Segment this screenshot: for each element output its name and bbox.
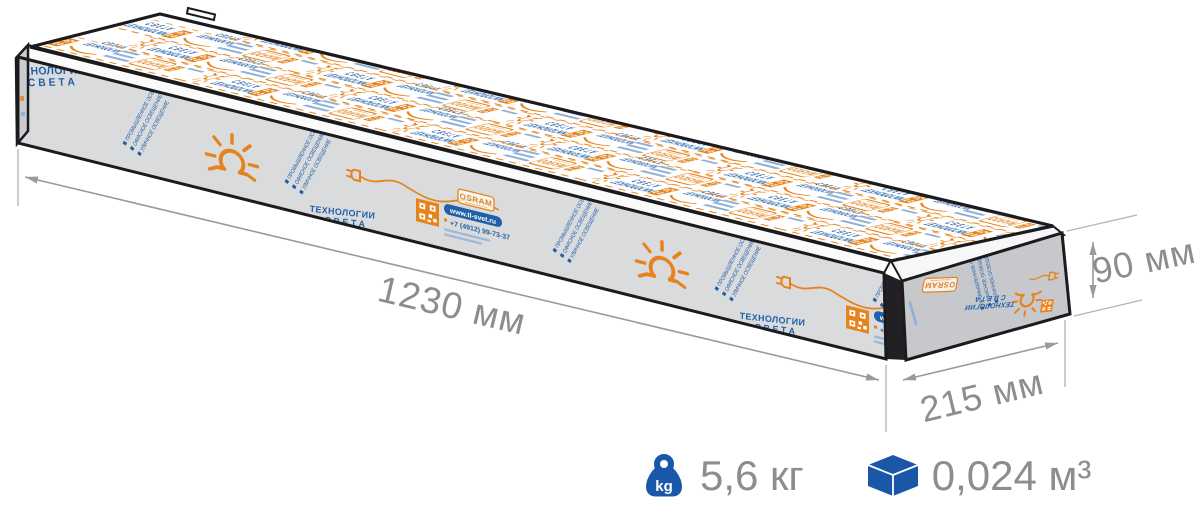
- product-dimensions-diagram: ТЕХНОЛОГИИ СВЕТА OSRAM ПРОМЫШЛЕННОЕ ОСВЕ…: [0, 0, 1200, 513]
- ext-line-height-top: [1067, 215, 1137, 231]
- volume-stat: 0,024 м³: [866, 452, 1092, 500]
- ext-line-height-bottom: [1074, 300, 1142, 316]
- dimension-height-label: 90 мм: [1089, 230, 1200, 292]
- dimension-length-label: 1230 мм: [374, 268, 530, 343]
- left-end-print-mark: [20, 96, 24, 101]
- kg-badge: kg: [655, 478, 673, 495]
- cube-icon: [866, 453, 920, 499]
- package-stats-row: kg 5,6 кг 0,024 м³: [640, 452, 1091, 500]
- weight-value: 5,6 кг: [700, 452, 804, 500]
- product-box: [0, 0, 1200, 380]
- kettlebell-kg-icon: kg: [640, 453, 688, 499]
- box-back-tab: [187, 8, 215, 20]
- volume-value: 0,024 м³: [932, 452, 1092, 500]
- weight-stat: kg 5,6 кг: [640, 452, 804, 500]
- box-diagram-svg: ТЕХНОЛОГИИ СВЕТА OSRAM ПРОМЫШЛЕННОЕ ОСВЕ…: [0, 0, 1200, 513]
- dimension-depth-label: 215 мм: [916, 361, 1048, 430]
- left-end-print-mark-2: [21, 112, 25, 116]
